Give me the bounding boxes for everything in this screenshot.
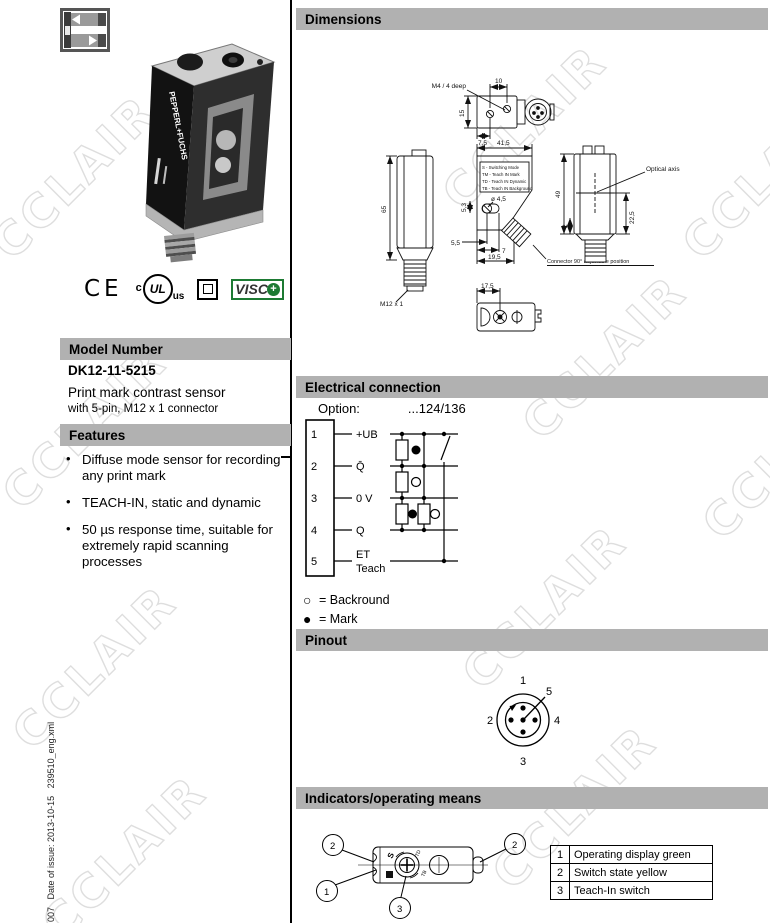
dim-side-view-left: 65 M12 x 1: [380, 150, 433, 308]
model-number-header: Model Number: [60, 338, 291, 360]
connector-threads: [502, 218, 531, 247]
mode-label: TB - Teach IN Background: [482, 186, 533, 191]
pinout-diagram: 1 5 2 4 3: [450, 668, 600, 780]
visco-text: VISC: [235, 281, 268, 297]
dim-label: 2: [562, 224, 569, 228]
option-label: Option:: [318, 401, 360, 416]
ul-circle: UL: [143, 274, 173, 304]
ul-c-label: c: [136, 282, 142, 294]
background-symbol: ○: [303, 592, 319, 608]
svg-text:3: 3: [397, 904, 402, 915]
pinout-header: Pinout: [296, 629, 768, 651]
features-header: Features: [60, 424, 291, 446]
print-mark-icon: [60, 8, 110, 52]
pin-4-label: 4: [554, 715, 560, 727]
mark-symbol: ●: [303, 611, 319, 627]
svg-text:2: 2: [330, 841, 335, 852]
dim-label: 7: [502, 248, 506, 255]
dim-label: 15: [459, 109, 466, 117]
pin-num: 5: [311, 556, 317, 568]
dimensions-drawing: 10 M4 / 4 deep 15 7,5 41,5 S - Switching…: [300, 38, 766, 372]
svg-text:2: 2: [512, 840, 517, 851]
watermark: CCLAIR: [2, 574, 188, 760]
feature-item: •50 µs response time, suitable for extre…: [60, 522, 285, 570]
pin-num: 1: [311, 429, 317, 441]
svg-text:TD: TD: [414, 849, 422, 858]
option-line: Option: ...124/136: [318, 401, 466, 416]
pin-label: Q: [356, 525, 365, 537]
svg-text:S: S: [386, 851, 397, 860]
dim-label: M4 / 4 deep: [432, 83, 467, 90]
callout-2-right: 2: [480, 834, 526, 863]
pin-num: 3: [311, 493, 317, 505]
product-subdescription: with 5-pin, M12 x 1 connector: [68, 403, 218, 415]
electrical-header: Electrical connection: [296, 376, 768, 398]
dim-top-view: 10 M4 / 4 deep 15 7,5: [432, 78, 554, 147]
ul-mark: c UL us: [136, 274, 185, 304]
dim-label: 10: [495, 78, 503, 85]
feature-item: •Diffuse mode sensor for recording any p…: [60, 452, 285, 484]
dim-label: Optical axis: [646, 166, 680, 173]
dim-label: 22,5: [629, 211, 636, 224]
dim-label: 65: [381, 205, 388, 213]
svg-text:TB: TB: [420, 869, 428, 878]
feature-item: •TEACH-IN, static and dynamic: [60, 495, 285, 511]
protection-class-ii-icon: [197, 279, 218, 300]
model-number-value: DK12-11-5215: [68, 363, 156, 378]
mode-label: S - Switching Mode: [482, 165, 520, 170]
callout-3: 3: [390, 876, 411, 919]
watermark: CCLAIR: [32, 764, 218, 923]
dim-label: ø 4,5: [491, 196, 506, 203]
dim-label: M12 x 1: [380, 301, 404, 308]
indicators-drawing: S TD TB 2 1 3 2: [300, 815, 550, 921]
pin-5-label: 5: [546, 686, 552, 698]
legend-background: ○ = Backround: [303, 592, 390, 608]
table-row: 3 Teach-In switch: [551, 882, 713, 900]
dim-label: 49: [555, 190, 562, 198]
ul-us-label: us: [173, 291, 185, 302]
pin-label: +UB: [356, 429, 378, 441]
indicators-header: Indicators/operating means: [296, 787, 768, 809]
mode-label: TD - Teach IN Dynamic: [482, 179, 527, 184]
features-list: •Diffuse mode sensor for recording any p…: [60, 452, 285, 582]
pin-2-label: 2: [487, 715, 493, 727]
certification-row: CE c UL us VISC +: [84, 273, 284, 305]
ce-mark: CE: [84, 276, 123, 302]
m12-threads: [404, 260, 426, 291]
pin-label: ET: [356, 549, 370, 561]
visco-logo: VISC +: [231, 279, 284, 300]
dim-side-view-right: Optical axis 49 2 22,5: [555, 146, 680, 262]
dimensions-header: Dimensions: [296, 8, 768, 30]
product-description: Print mark contrast sensor: [68, 385, 226, 400]
product-photo: PEPPERL+FUCHS: [112, 38, 290, 266]
dim-front-view: 41,5 S - Switching Mode TM - Teach IN Ma…: [451, 140, 654, 266]
electrical-legend: ○ = Backround ● = Mark: [303, 592, 390, 630]
dim-label: 17,5: [481, 283, 494, 290]
option-value: ...124/136: [408, 401, 466, 416]
m12-threads-2: [585, 240, 606, 262]
pin-num: 4: [311, 525, 317, 537]
pin-label: 0 V: [356, 493, 373, 505]
svg-text:1: 1: [324, 887, 329, 898]
date-of-issue-note: 007 Date of issue: 2013-10-15 239510_eng…: [46, 730, 56, 922]
mode-label: TM - Teach IN Mark: [482, 172, 520, 177]
dim-label: 5,5: [451, 240, 460, 247]
table-row: 2 Switch state yellow: [551, 864, 713, 882]
pin-1-label: 1: [520, 675, 526, 687]
legend-mark: ● = Mark: [303, 611, 390, 627]
electrical-diagram: 1 2 3 4 5 +UB Q̄ 0 V Q ET Teach: [300, 418, 660, 580]
dim-bottom-view: 17,5: [477, 283, 541, 331]
pin-label: Teach: [356, 563, 385, 575]
pin-label: Q̄: [356, 460, 365, 473]
dim-label: 7,5: [478, 140, 487, 147]
datasheet-page: CCLAIR CCLAIR CCLAIR CCLAIR CCLAIR CCLAI…: [0, 0, 770, 923]
m12-connector: [164, 233, 197, 263]
dim-label: 19,5: [488, 254, 501, 261]
table-row: 1 Operating display green: [551, 846, 713, 864]
indicators-table: 1 Operating display green 2 Switch state…: [550, 845, 713, 900]
pin-num: 2: [311, 461, 317, 473]
callout-1: 1: [317, 870, 377, 902]
pin-3-label: 3: [520, 756, 526, 768]
visco-plus-icon: +: [267, 283, 280, 296]
callout-2-left: 2: [323, 835, 375, 863]
column-divider: [290, 0, 292, 923]
dim-label: 41,5: [497, 140, 510, 147]
dim-label: 5,3: [461, 203, 468, 212]
